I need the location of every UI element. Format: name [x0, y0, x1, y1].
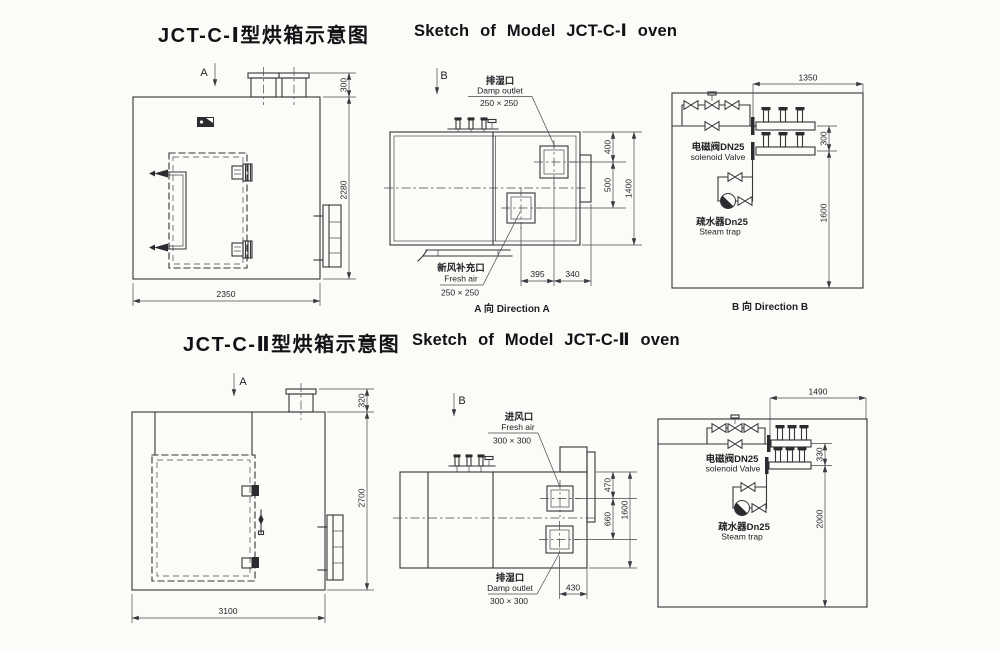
steam-supply-lines	[672, 92, 756, 130]
dim-vent-height-label: 320	[357, 393, 367, 407]
heater-pipe-lower	[751, 132, 815, 160]
fresh-air-cn: 新风补充口	[437, 262, 485, 274]
steam-trap-loop	[733, 474, 767, 516]
door-hinge-top	[232, 164, 252, 181]
dim-300-label: 300	[819, 131, 829, 145]
door-handle	[149, 170, 186, 252]
solenoid-valve-icon	[705, 101, 719, 110]
valve-icon	[741, 483, 755, 492]
valve-icon	[705, 122, 719, 131]
oven1-plan-body	[384, 132, 591, 245]
oven2-title-cn: JCT-C-Ⅱ型烘箱示意图	[183, 328, 400, 357]
dim-470-label: 470	[603, 478, 613, 492]
oven1-title-en: Sketch of Model JCT-C-Ⅰ oven	[414, 21, 677, 41]
top-manifold	[449, 454, 495, 472]
dim-430-label: 430	[566, 583, 580, 593]
dim-430: 430	[560, 559, 588, 599]
dim-1350: 1350	[753, 73, 863, 118]
damp-outlet-en: Damp outlet	[487, 583, 533, 593]
fresh-air-callout: 进风口 Fresh air 300 × 300	[488, 411, 560, 487]
dim-1350-label: 1350	[799, 73, 818, 83]
solenoid-valve-icon	[728, 424, 742, 433]
fresh-air-en: Fresh air	[501, 422, 535, 432]
valve-icon	[752, 504, 766, 513]
dim-1600: 1600	[819, 151, 830, 288]
view-direction-b: B	[454, 393, 466, 416]
oven2-door	[152, 455, 264, 581]
steam-supply-lines	[658, 415, 771, 448]
fresh-air-opening	[540, 480, 580, 517]
valve-icon	[744, 424, 758, 433]
oven2-piping-view: 1490 330	[655, 380, 960, 645]
plan-dims-right: 470 660 1600	[575, 472, 637, 568]
heater-pipe-upper	[751, 107, 815, 135]
dim-vent-height: 300	[310, 73, 356, 97]
dim-body-height-label: 2280	[339, 180, 349, 199]
oven2-cabinet	[132, 383, 325, 590]
oven1-nameplate	[197, 117, 214, 127]
solenoid-label-en: solenoid Valve	[691, 152, 746, 162]
oven1-front-view: A 300 2280 2350	[120, 55, 380, 320]
valve-icon	[684, 101, 698, 110]
dim-body-height: 2280	[323, 97, 356, 279]
fresh-air-opening	[501, 187, 541, 229]
drawing-sheet: JCT-C-Ⅰ型烘箱示意图 Sketch of Model JCT-C-Ⅰ ov…	[0, 0, 1000, 651]
dim-400-label: 400	[603, 140, 613, 154]
view-b-label: B	[440, 70, 447, 82]
dim-2000: 2000	[815, 466, 826, 608]
trap-label-en: Steam trap	[721, 532, 763, 542]
view-direction-a: A	[234, 373, 247, 396]
oven1-title-cn: JCT-C-Ⅰ型烘箱示意图	[158, 19, 369, 48]
dim-vent-height-label: 300	[339, 78, 349, 92]
view-direction-b: B	[437, 68, 448, 94]
steam-trap-loop	[718, 160, 753, 209]
fresh-air-callout: 新风补充口 Fresh air 250 × 250	[437, 212, 520, 298]
dim-width-label: 3100	[219, 606, 238, 616]
oven2-front-view: A 320 2700 3100	[115, 370, 385, 640]
plan-dims-right: 400 500 1400	[537, 132, 642, 245]
heater-pipe-lower	[765, 447, 811, 474]
piping-frame	[658, 419, 867, 607]
damp-outlet-en: Damp outlet	[477, 86, 523, 96]
valve-icon	[728, 173, 742, 182]
dim-width: 2350	[133, 283, 320, 306]
valve-icon	[725, 101, 739, 110]
door-handle	[258, 510, 263, 535]
dim-330: 330	[811, 444, 832, 466]
dim-1600-label: 1600	[819, 203, 829, 222]
view-a-label: A	[239, 376, 247, 388]
door-hinge-bottom	[232, 241, 252, 258]
dim-500-label: 500	[603, 178, 613, 192]
oven2-side-bracket	[318, 515, 343, 580]
fresh-air-size: 300 × 300	[493, 436, 531, 446]
fresh-air-en: Fresh air	[444, 274, 478, 284]
oven1-door	[149, 153, 252, 268]
direction-b-caption: B 向 Direction B	[732, 300, 808, 313]
damp-outlet-size: 250 × 250	[480, 98, 518, 108]
valve-icon	[712, 424, 726, 433]
dim-340-label: 340	[565, 269, 579, 279]
door-hinge-bottom	[242, 557, 259, 568]
view-direction-a: A	[200, 63, 215, 86]
damp-outlet-callout: 排湿口 Damp outlet 300 × 300	[487, 553, 559, 606]
dim-body-height-label: 2700	[357, 488, 367, 507]
valve-icon	[728, 440, 742, 449]
solenoid-label-en: solenoid Valve	[706, 464, 761, 474]
door-hinge-top	[242, 485, 259, 496]
damp-outlet-size: 300 × 300	[490, 596, 528, 606]
trap-label-en: Steam trap	[699, 227, 741, 237]
top-manifold	[448, 117, 498, 132]
dim-1600-label: 1600	[620, 500, 630, 519]
view-a-label: A	[200, 67, 208, 79]
oven2-plan-view: B 进风口 Fresh air 300 × 300 排湿口 Damp outle…	[385, 375, 665, 645]
valve-icon	[738, 197, 752, 206]
dim-1400-label: 1400	[624, 179, 634, 198]
fresh-air-size: 250 × 250	[441, 288, 479, 298]
steam-trap-icon	[735, 501, 750, 516]
dim-1490-label: 1490	[809, 387, 828, 397]
dim-300: 300	[817, 126, 837, 151]
dim-vent-height: 320	[319, 389, 374, 412]
oven2-plan-body	[393, 447, 595, 568]
oven2-title-en: Sketch of Model JCT-C-Ⅱ oven	[412, 330, 680, 350]
dim-width: 3100	[132, 594, 325, 623]
view-b-label: B	[458, 395, 465, 407]
dim-330-label: 330	[815, 447, 825, 461]
steam-trap-icon	[721, 194, 736, 209]
oven1-piping-view: 1350 300	[660, 60, 960, 320]
oven1-side-bracket	[314, 205, 341, 267]
dim-660-label: 660	[603, 512, 613, 526]
oven1-plan-view: B 排湿口 Damp outlet 250 × 250 新风补充口 Fresh …	[380, 60, 660, 320]
direction-a-caption: A 向 Direction A	[474, 302, 549, 315]
dim-395-label: 395	[530, 269, 544, 279]
dim-2000-label: 2000	[815, 509, 825, 528]
dim-width-label: 2350	[217, 289, 236, 299]
